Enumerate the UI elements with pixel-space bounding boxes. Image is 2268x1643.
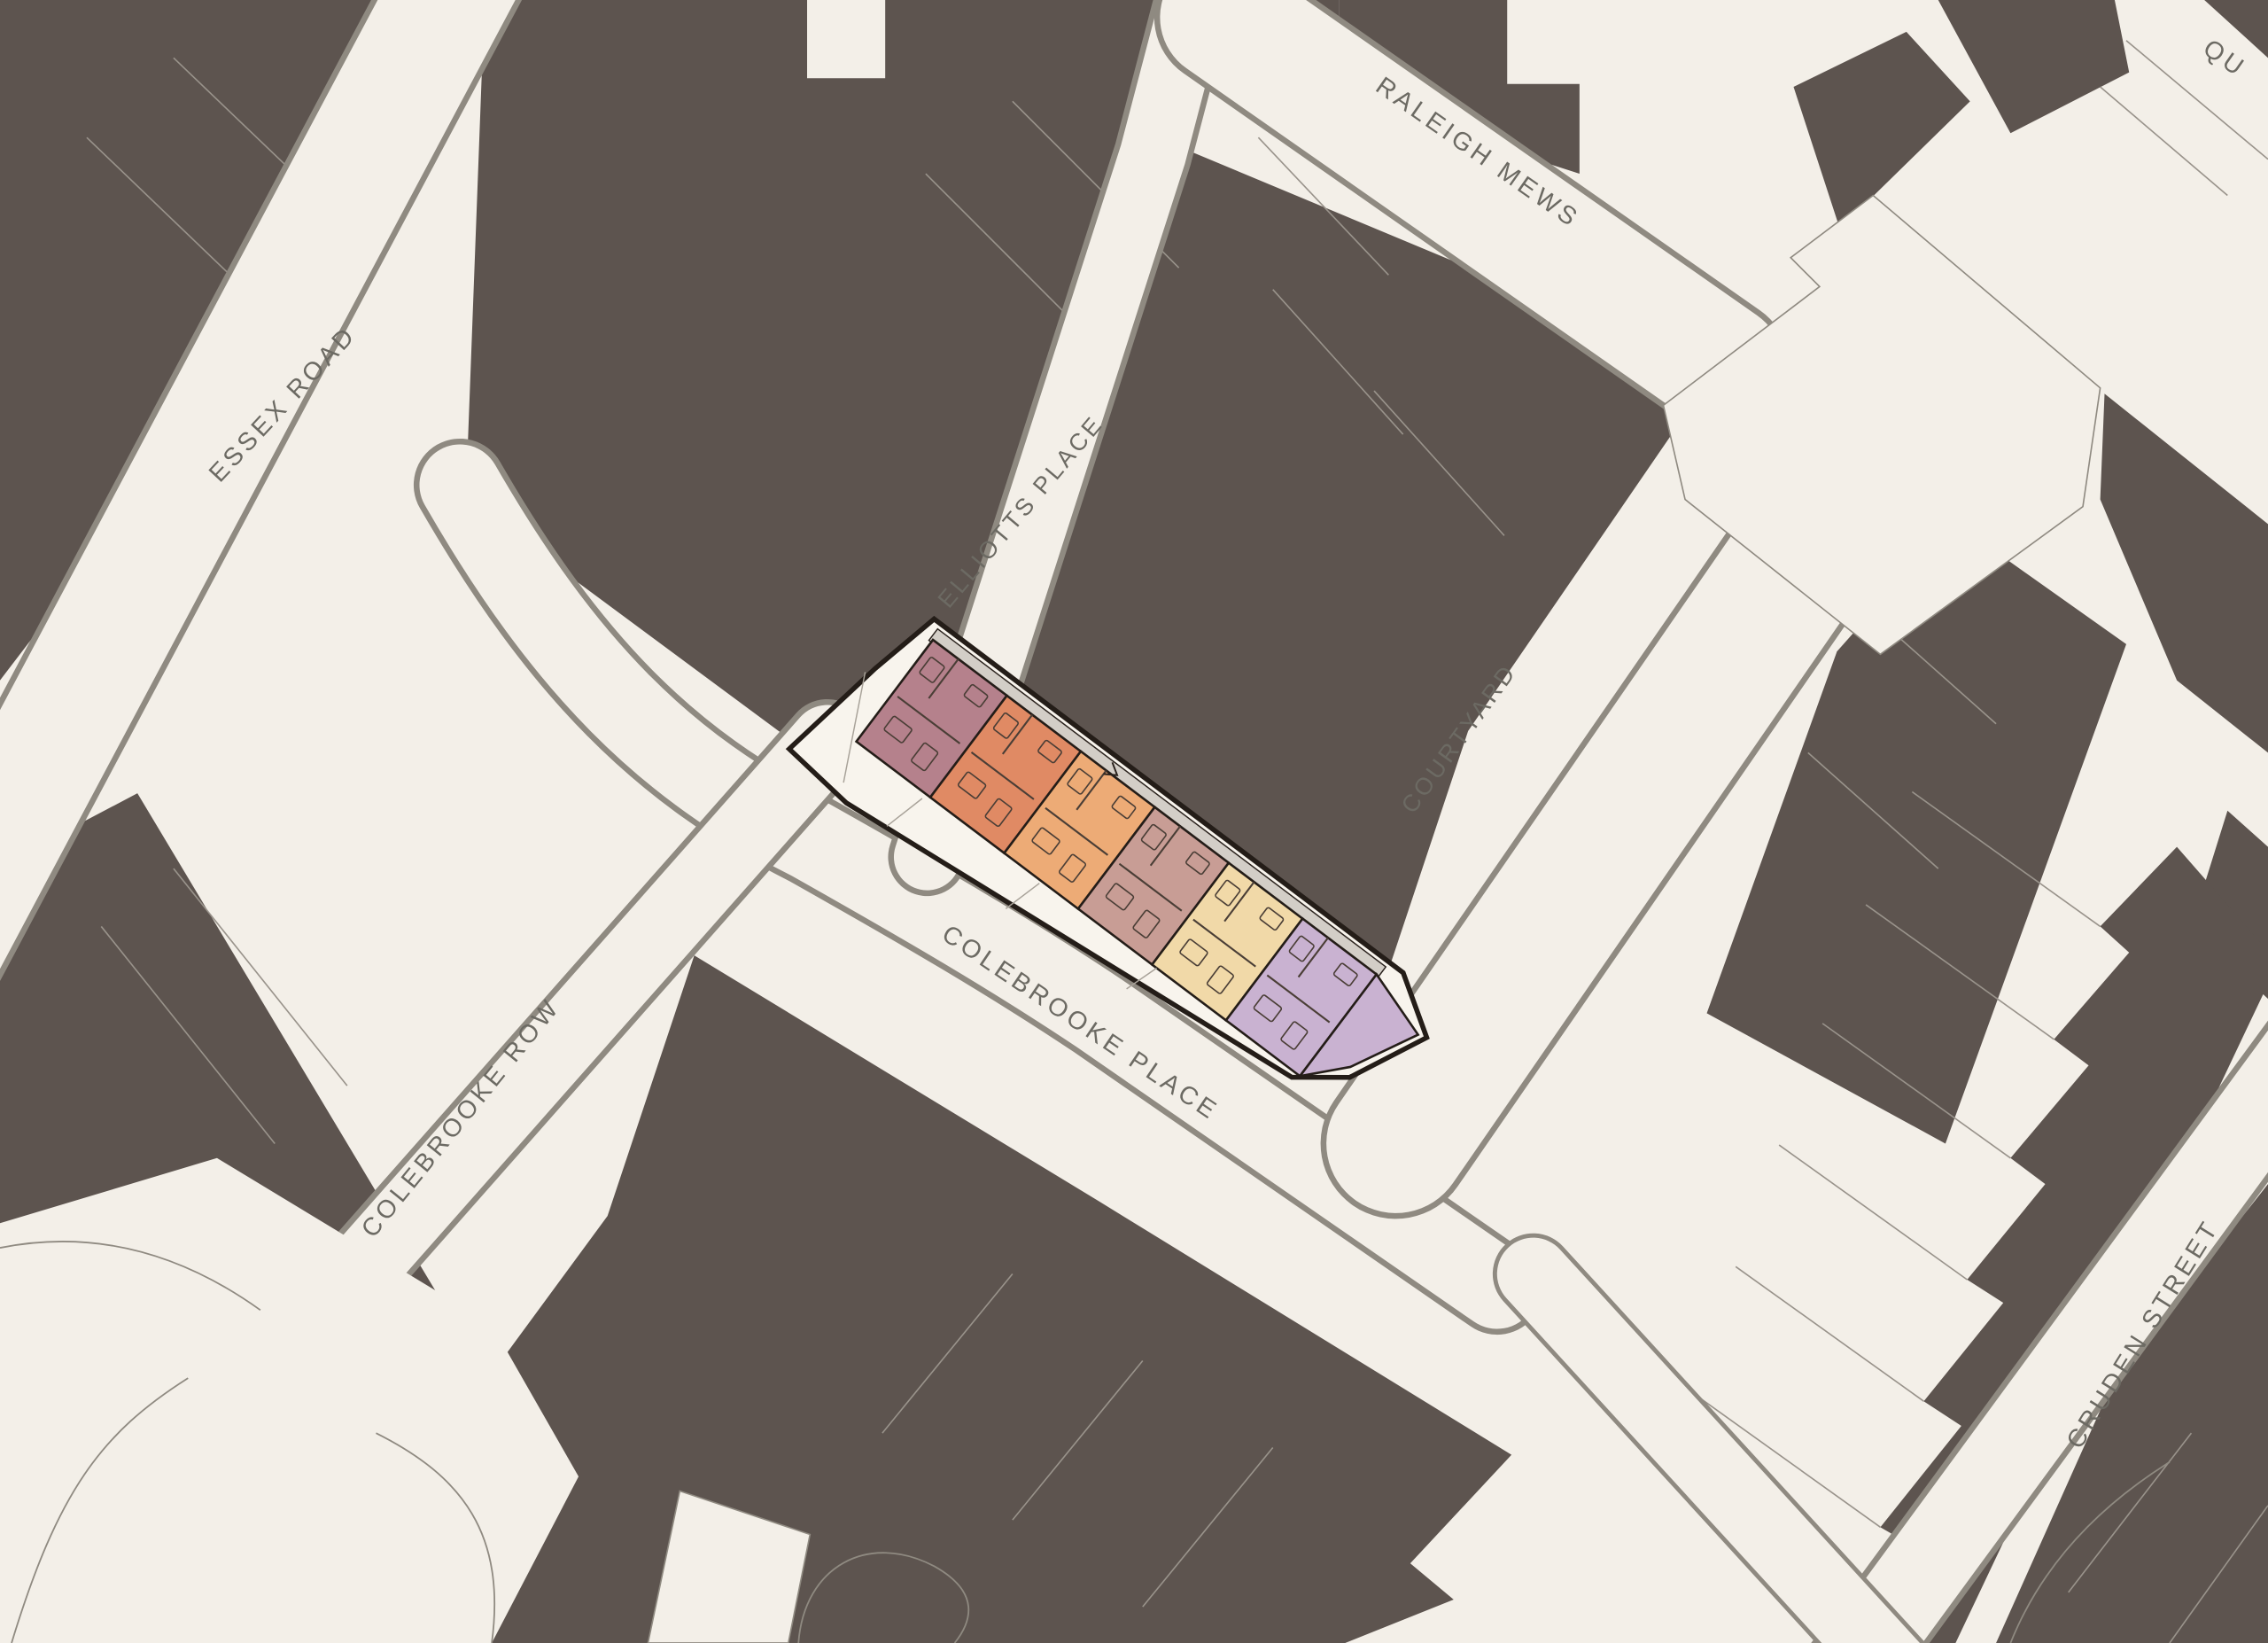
map-canvas: ESSEX ROAD ELLIOTTS PLACE RALEIGH MEWS C… [0, 0, 2268, 1643]
site-location-map: ESSEX ROAD ELLIOTTS PLACE RALEIGH MEWS C… [0, 0, 2268, 1643]
